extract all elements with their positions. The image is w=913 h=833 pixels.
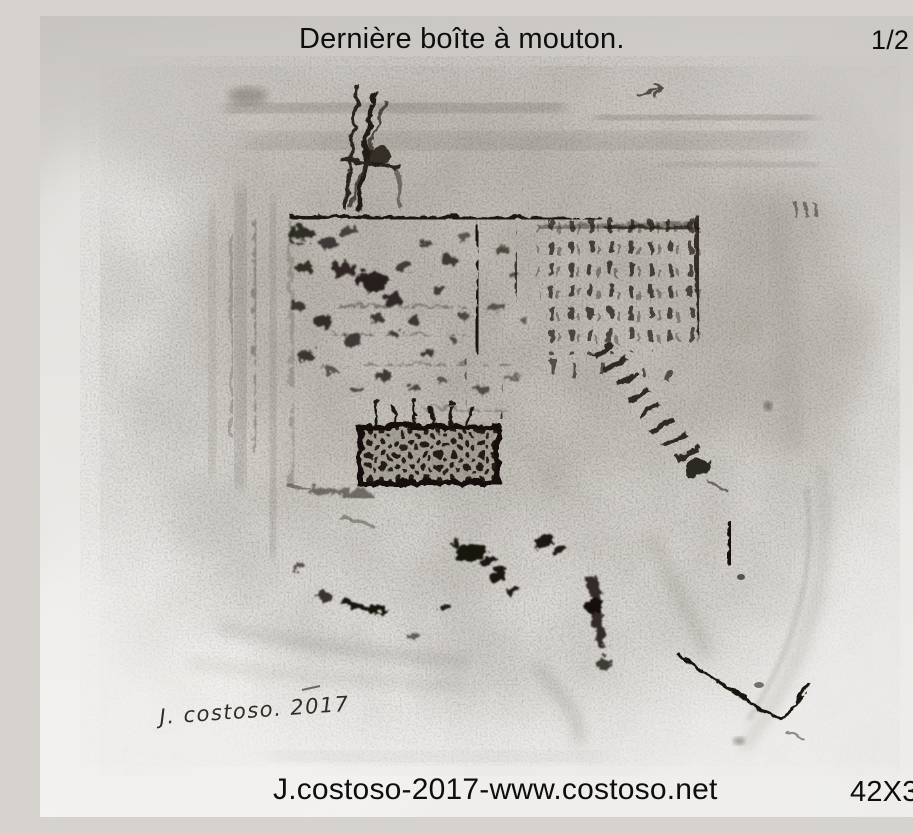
artwork-dimensions: 42X37 <box>850 778 913 807</box>
charcoal-grain <box>80 56 900 766</box>
artwork-photo: J. costoso. 2017 Dernière boîte à mouton… <box>40 16 913 817</box>
monotype-artwork: J. costoso. 2017 <box>40 16 913 817</box>
edition-number: 1/2 <box>871 27 909 54</box>
artwork-title: Dernière boîte à mouton. <box>299 25 625 54</box>
